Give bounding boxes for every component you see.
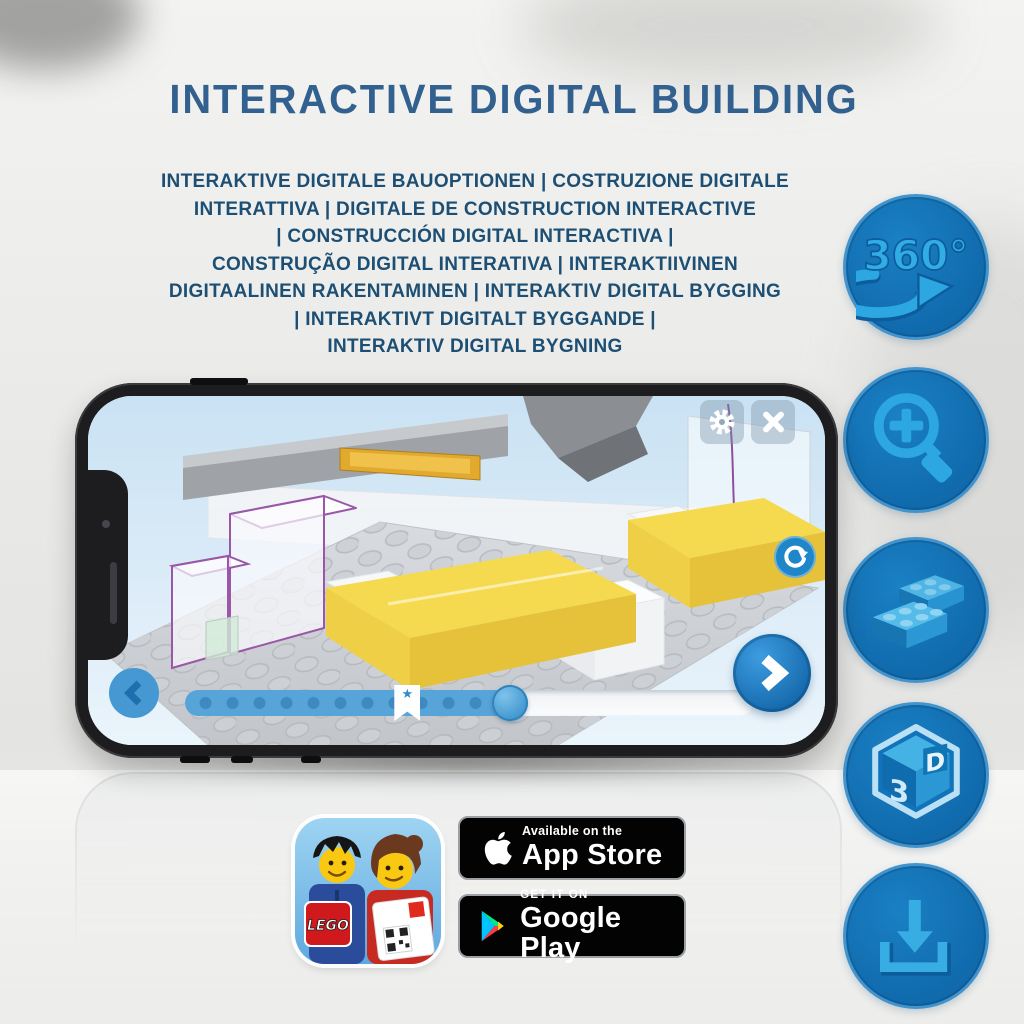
svg-text:360°: 360° (863, 231, 969, 279)
feature-360-rotation: 360° (843, 194, 989, 340)
gear-icon (707, 407, 737, 437)
page-title: INTERACTIVE DIGITAL BUILDING (29, 76, 999, 123)
feature-download (843, 863, 989, 1009)
phone-notch (88, 470, 128, 660)
progress-fill (185, 690, 510, 716)
subtitle-line: INTERAKTIVE DIGITALE BAUOPTIONEN | COSTR… (128, 168, 822, 196)
subtitle-line: | CONSTRUCCIÓN DIGITAL INTERACTIVA | (128, 223, 822, 251)
apple-logo-icon (468, 826, 520, 870)
subtitle-line: DIGITAALINEN RAKENTAMINEN | INTERAKTIV D… (128, 278, 822, 306)
front-camera (102, 520, 110, 528)
badge-store-name: Google Play (520, 903, 684, 964)
rotate-view-button[interactable] (774, 536, 816, 578)
background-smudge (0, 0, 140, 70)
360-rotation-icon: 360° (856, 207, 976, 327)
chevron-left-icon (123, 680, 145, 706)
feature-3d-view: 3 D (843, 702, 989, 848)
app-store-badge[interactable]: Available on the App Store (458, 816, 686, 880)
lego-building-app-icon[interactable]: LEGO (295, 818, 441, 964)
rotate-icon (782, 544, 808, 570)
phone-volume-button (231, 756, 253, 763)
previous-step-button[interactable] (109, 668, 159, 718)
background-smudge (520, 0, 940, 80)
badge-tagline: Available on the (522, 825, 662, 838)
phone-screen: ★ (88, 396, 825, 745)
multilingual-subtitle: INTERAKTIVE DIGITALE BAUOPTIONEN | COSTR… (128, 168, 822, 361)
earpiece-speaker (110, 562, 117, 624)
svg-text:D: D (925, 745, 945, 778)
smartphone: ★ (75, 383, 838, 758)
phone-side-button (190, 378, 248, 385)
subtitle-line: INTERAKTIV DIGITAL BYGNING (128, 333, 822, 361)
chevron-right-icon (755, 653, 789, 693)
google-play-badge[interactable]: GET IT ON Google Play (458, 894, 686, 958)
phone-reflection (75, 772, 842, 1004)
progress-knob[interactable] (492, 685, 528, 721)
zoom-in-magnifier-icon (856, 380, 976, 500)
settings-button[interactable] (700, 400, 744, 444)
lego-bricks-icon (856, 550, 976, 670)
subtitle-line: CONSTRUÇÃO DIGITAL INTERATIVA | INTERAKT… (128, 251, 822, 279)
phone-power-button (301, 756, 321, 763)
badge-store-name: App Store (522, 840, 662, 870)
app-icon-artwork: LEGO (295, 818, 441, 964)
3d-cube-icon: 3 D (856, 715, 976, 835)
svg-text:3: 3 (889, 772, 909, 810)
subtitle-line: | INTERAKTIVT DIGITALT BYGGANDE | (128, 306, 822, 334)
close-button[interactable] (751, 400, 795, 444)
google-play-logo-icon (468, 906, 518, 946)
svg-text:LEGO: LEGO (307, 918, 349, 934)
next-step-button[interactable] (733, 634, 811, 712)
build-progress-slider[interactable]: ★ (185, 690, 755, 716)
feature-brick-options (843, 537, 989, 683)
subtitle-line: INTERATTIVA | DIGITALE DE CONSTRUCTION I… (128, 196, 822, 224)
badge-tagline: GET IT ON (520, 889, 684, 901)
phone-volume-button (180, 756, 210, 763)
download-icon (856, 876, 976, 996)
feature-zoom-in (843, 367, 989, 513)
